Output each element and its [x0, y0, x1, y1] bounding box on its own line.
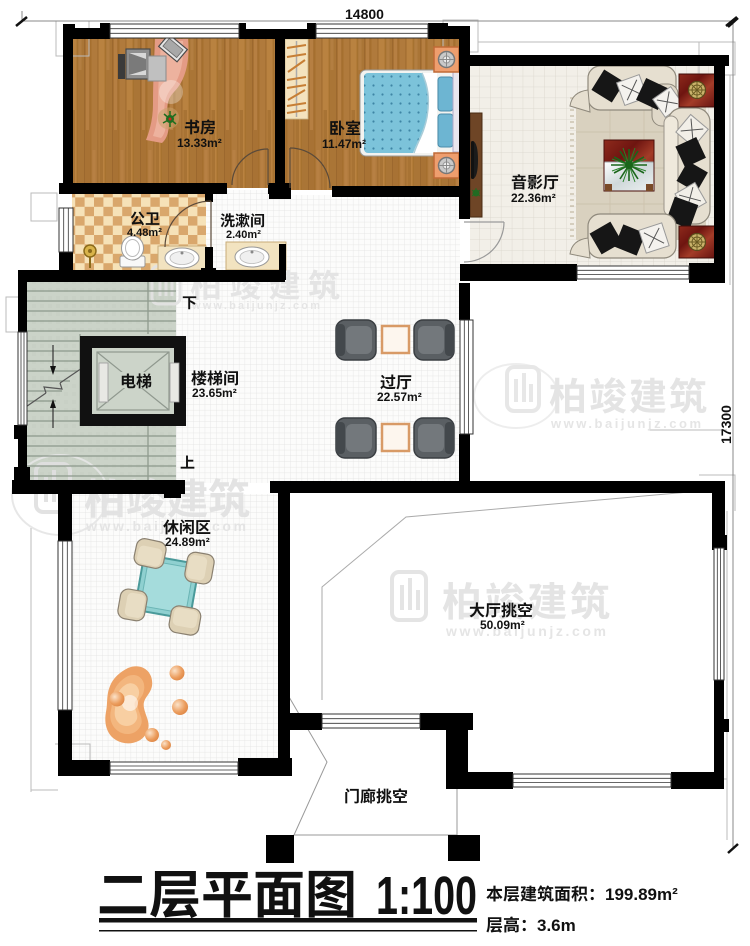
svg-text:音影厅: 音影厅: [511, 169, 559, 193]
svg-text:二层平面图: 二层平面图: [97, 853, 357, 928]
svg-text:13.33m²: 13.33m²: [177, 136, 222, 150]
svg-text:下: 下: [182, 292, 197, 313]
svg-text:柏竣建筑: 柏竣建筑: [549, 366, 707, 421]
svg-text:23.65m²: 23.65m²: [192, 386, 237, 400]
svg-text:电梯: 电梯: [120, 368, 152, 392]
svg-text:卧室: 卧室: [329, 115, 361, 139]
svg-text:1:100: 1:100: [376, 866, 477, 926]
svg-text:11.47m²: 11.47m²: [322, 137, 366, 151]
svg-text:2.40m²: 2.40m²: [226, 229, 261, 241]
svg-text:上: 上: [180, 452, 195, 473]
svg-text:50.09m²: 50.09m²: [480, 618, 525, 632]
svg-text:门廊挑空: 门廊挑空: [344, 783, 408, 807]
svg-text:17300: 17300: [718, 405, 734, 444]
svg-text:14800: 14800: [345, 6, 384, 22]
svg-text:22.36m²: 22.36m²: [511, 191, 556, 205]
svg-text:4.48m²: 4.48m²: [127, 227, 162, 239]
svg-text:洗漱间: 洗漱间: [220, 210, 265, 231]
svg-text:公卫: 公卫: [130, 208, 160, 229]
svg-text:书房: 书房: [184, 114, 216, 138]
svg-text:24.89m²: 24.89m²: [165, 535, 210, 549]
svg-text:22.57m²: 22.57m²: [377, 390, 422, 404]
